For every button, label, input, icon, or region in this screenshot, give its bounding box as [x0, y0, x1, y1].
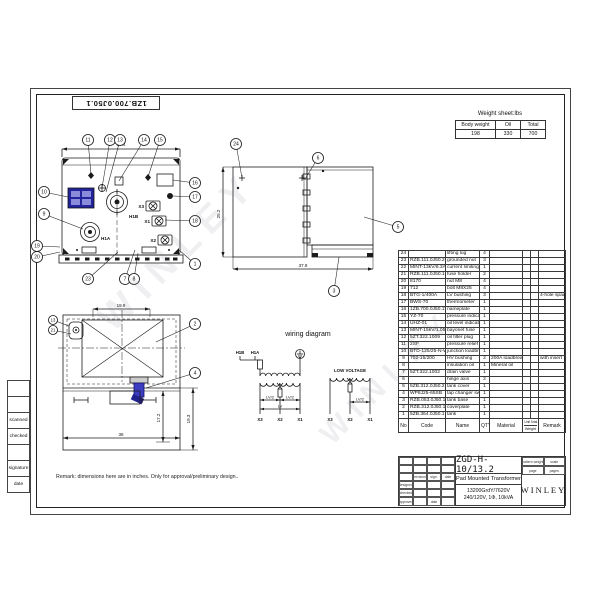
balloon-leader: [156, 324, 195, 342]
parts-header-cell: Material: [490, 419, 523, 433]
wiring-h1b-label: H1B: [236, 350, 245, 355]
parts-row: 55ZB.312.0J50.2tank cover1: [399, 384, 566, 391]
x3-bushing: [146, 201, 160, 211]
parts-row: 15ZB.364.0J50.1tank1: [399, 412, 566, 419]
x1-bushing: [152, 216, 166, 226]
parts-cell: [539, 258, 566, 265]
drawing-number: ZGD-H-10/13.2: [456, 457, 521, 474]
title-block-mini-cell: [441, 481, 455, 489]
parts-cell: nameplate: [446, 307, 480, 314]
wiring-lv-label: LV: [278, 404, 283, 409]
parts-row: 75ZT.322.1002drain valve1: [399, 370, 566, 377]
parts-cell: HV bushing: [446, 356, 480, 363]
nameplate-graphic: [68, 188, 94, 208]
parts-cell: [531, 258, 539, 265]
parts-cell: [490, 300, 523, 307]
parts-cell: [490, 328, 523, 335]
balloon-number: 2: [194, 322, 197, 328]
parts-cell: [523, 384, 531, 391]
parts-cell: YZ-70: [409, 314, 446, 321]
parts-cell: [523, 307, 531, 314]
parts-header-cell: Code: [409, 419, 446, 433]
parts-cell: [539, 377, 566, 384]
parts-cell: 3: [480, 258, 490, 265]
parts-row: 24lifting lug4: [399, 251, 566, 258]
balloon-number: 15: [157, 138, 163, 144]
parts-cell: [539, 405, 566, 412]
parts-row: 17BWS-70thermometer1: [399, 300, 566, 307]
title-block-right-row2: page pages: [522, 466, 565, 475]
title-block-mini-cell: date: [441, 473, 455, 481]
jack-boss-right: [142, 247, 156, 253]
parts-cell: [531, 321, 539, 328]
parts-cell: 9: [399, 356, 409, 363]
parts-cell: [531, 398, 539, 405]
parts-cell: coverplate: [446, 405, 480, 412]
weight-cell: 700: [521, 130, 546, 139]
parts-cell: [490, 398, 523, 405]
parts-cell: [531, 412, 539, 419]
title-block-right: pattern weight scale page pages WINLEY: [522, 457, 565, 505]
parts-cell: UHZ-01: [409, 321, 446, 328]
parts-cell: [539, 286, 566, 293]
wiring-lv-half-label-2: LV/2: [286, 395, 295, 400]
plan-view-drawing: 19.9 36 17.2 19.3 132124: [46, 292, 226, 464]
title-block-mini-cell: [399, 457, 413, 465]
title-block-right-row1: pattern weight scale: [522, 457, 565, 466]
x3-label: X3: [138, 204, 144, 209]
parts-cell: 1: [480, 300, 490, 307]
parts-cell: 1: [480, 391, 490, 398]
weight-cell: 198: [456, 130, 496, 139]
parts-cell: [531, 384, 539, 391]
title-block-mini-cell: sign.: [427, 473, 441, 481]
parts-cell: [531, 300, 539, 307]
parts-cell: [523, 251, 531, 258]
parts-cell: MINT-15kV/1.05A: [409, 328, 446, 335]
parts-cell: Mineral oil: [490, 363, 523, 370]
balloon-number: 17: [192, 195, 198, 201]
parts-row: 23RZB.111.0J50.2grounded nut3: [399, 258, 566, 265]
parts-cell: 4: [399, 391, 409, 398]
parts-cell: current limiting fuse: [446, 265, 480, 272]
parts-cell: 1: [480, 307, 490, 314]
margin-box: [7, 444, 30, 461]
balloon-number: 1: [194, 262, 197, 268]
parts-cell: 13: [399, 328, 409, 335]
parts-cell: 5ZT.322.1002: [409, 370, 446, 377]
spec-voltage-hv: 13200GrdY/7620V: [467, 488, 510, 495]
wiring-lv-half-label-3: LV/2: [356, 397, 365, 402]
title-block-mini-cell: [427, 465, 441, 473]
parts-cell: 1: [480, 363, 490, 370]
parts-cell: 4: [480, 251, 490, 258]
parts-cell: [531, 286, 539, 293]
balloon-number: 12: [107, 138, 113, 144]
parts-cell: 5ZB.364.0J50.1: [409, 412, 446, 419]
product-specs: 13200GrdY/7620V 240/120V, 1Φ, 10kVA: [456, 485, 521, 505]
title-block-mini-cell: [427, 489, 441, 497]
parts-cell: [539, 300, 566, 307]
parts-cell: [539, 314, 566, 321]
title-block: revisionsign.datedesignedcheckedapproved…: [398, 456, 566, 506]
parts-cell: [539, 412, 566, 419]
parts-cell: [523, 377, 531, 384]
balloon-leader: [44, 214, 83, 229]
parts-row: 112SFpressure relief valve1: [399, 342, 566, 349]
parts-cell: [490, 314, 523, 321]
ground-pad-mark: [167, 193, 173, 199]
parts-cell: 4-hole spade: [539, 293, 566, 300]
title-block-mini-cell: approved: [399, 497, 413, 505]
parts-cell: 5ZT.322.1009: [409, 335, 446, 342]
plan-dim-right1: 17.2: [156, 413, 161, 422]
parts-cell: 1: [480, 321, 490, 328]
parts-cell: [523, 265, 531, 272]
parts-cell: BWS-70: [409, 300, 446, 307]
balloon-number: 6: [317, 156, 320, 162]
parts-cell: [539, 384, 566, 391]
parts-cell: BTG-1/400A: [409, 293, 446, 300]
parts-cell: [490, 251, 523, 258]
title-block-mini-cell: [441, 465, 455, 473]
parts-cell: [523, 272, 531, 279]
weight-sheet-title: Weight sheet:lbs: [452, 111, 548, 117]
title-block-mini-cell: [413, 465, 427, 473]
wiring-title: wiring diagram: [284, 331, 331, 338]
spec-voltage-lv: 240/120V, 1Φ, 10kVA: [464, 495, 513, 502]
scale-label: scale: [544, 457, 566, 466]
parts-cell: 1: [480, 314, 490, 321]
margin-box: date: [7, 476, 30, 493]
parts-cell: [539, 391, 566, 398]
parts-cell: [539, 321, 566, 328]
margin-box: [7, 380, 30, 397]
parts-cell: 8: [399, 363, 409, 370]
title-block-mini-cell: [399, 473, 413, 481]
parts-cell: [539, 342, 566, 349]
doc-number-box: 1ZB.700.0J50.1: [72, 96, 160, 110]
left-margin-boxes: scannedcheckedsignaturedate: [7, 381, 30, 493]
parts-cell: [490, 384, 523, 391]
doc-number-text: 1ZB.700.0J50.1: [86, 99, 147, 108]
parts-cell: [539, 335, 566, 342]
wiring-h1a-label: H1A: [251, 350, 260, 355]
parts-cell: 5ZB.312.0J50.2: [409, 384, 446, 391]
title-block-mini-cell: [427, 481, 441, 489]
balloon-leader: [106, 140, 120, 192]
parts-cell: [490, 293, 523, 300]
parts-cell: [539, 265, 566, 272]
parts-cell: 702-15/200: [409, 356, 446, 363]
parts-row: 14UHZ-01oil level indicator1: [399, 321, 566, 328]
parts-cell: pressure indicator: [446, 314, 480, 321]
parts-cell: RZB.111.0J50.2: [409, 258, 446, 265]
title-block-mini-cell: [399, 465, 413, 473]
h1a-label: H1A: [101, 236, 111, 241]
parts-cell: 11: [399, 342, 409, 349]
balloon-number: 19: [34, 244, 40, 250]
parts-cell: pressure relief valve: [446, 342, 480, 349]
parts-cell: nut M8: [446, 279, 480, 286]
parts-cell: [523, 412, 531, 419]
parts-cell: [531, 272, 539, 279]
parts-header-cell: No: [399, 419, 409, 433]
parts-list-table: 24lifting lug423RZB.111.0J50.2grounded n…: [398, 250, 566, 433]
remark-note: Remark: dimensions here are in inches. O…: [56, 474, 239, 480]
title-block-mini-cell: [413, 497, 427, 505]
balloon-number: 4: [194, 371, 197, 377]
parts-cell: tap changer switch: [446, 391, 480, 398]
weight-cell: Body weight: [456, 121, 496, 130]
parts-cell: [531, 356, 539, 363]
parts-cell: RZB.053.0J50.1: [409, 398, 446, 405]
parts-cell: [523, 342, 531, 349]
parts-cell: MINT-13kV/6.3A: [409, 265, 446, 272]
parts-cell: 1: [480, 412, 490, 419]
parts-cell: [490, 258, 523, 265]
parts-cell: 1: [480, 342, 490, 349]
parts-cell: thermometer: [446, 300, 480, 307]
parts-cell: [539, 279, 566, 286]
parts-cell: [490, 412, 523, 419]
margin-box: [7, 396, 30, 413]
weight-cell: 330: [496, 130, 521, 139]
margin-box: scanned: [7, 412, 30, 429]
parts-cell: [523, 258, 531, 265]
parts-cell: [531, 342, 539, 349]
wiring-x2-label-right: X2: [347, 417, 353, 422]
parts-cell: 1: [480, 265, 490, 272]
parts-cell: 2: [480, 377, 490, 384]
side-view-drawing: 25.2 37.9 24653: [216, 138, 406, 303]
balloon-number: 5: [397, 225, 400, 231]
title-block-mini-cell: designed: [399, 481, 413, 489]
title-block-mini-cell: [413, 489, 427, 497]
weight-header-row: Body weightOilTotal: [456, 121, 546, 130]
parts-row: 6hinge axis2: [399, 377, 566, 384]
parts-cell: [531, 328, 539, 335]
parts-cell: [531, 279, 539, 286]
parts-cell: insulation oil: [446, 363, 480, 370]
wiring-x3-label-right: X3: [327, 417, 333, 422]
balloon-leader: [146, 373, 195, 388]
pages-label: pages: [544, 466, 566, 475]
parts-cell: [539, 272, 566, 279]
parts-cell: [409, 377, 446, 384]
parts-cell: 1: [480, 370, 490, 377]
title-block-mini-cell: revision: [413, 473, 427, 481]
wiring-x2-label-left: X2: [277, 417, 283, 422]
wiring-x1-label-right: X1: [367, 417, 373, 422]
base-vent-slots: [65, 258, 178, 261]
parts-row: 4WP8J25-65SBtap changer switch1: [399, 391, 566, 398]
parts-row: 13MINT-15kV/1.05Abayonet fuse1: [399, 328, 566, 335]
wiring-low-voltage-label: LOW VOLTAGE: [334, 368, 366, 373]
title-block-mini-cell: [441, 489, 455, 497]
parts-cell: [523, 356, 531, 363]
wiring-x3-label-left: X3: [257, 417, 263, 422]
front-view-drawing: 37.4 H1B H1A X3 X1 X2 111213141516171810…: [32, 128, 212, 290]
balloon-number: 24: [233, 142, 239, 148]
parts-cell: 14: [399, 321, 409, 328]
parts-cell: [539, 251, 566, 258]
margin-box: checked: [7, 428, 30, 445]
parts-cell: [490, 286, 523, 293]
plan-dim-right2: 19.3: [186, 414, 191, 423]
title-block-mini-cell: [441, 457, 455, 465]
product-name: Pad Mounted Transformer: [456, 474, 521, 485]
jack-boss-left: [82, 247, 96, 253]
side-dim-height: 25.2: [216, 209, 221, 218]
wiring-diagram: wiring diagram: [230, 326, 390, 440]
parts-cell: junction loadbreak: [446, 349, 480, 356]
parts-cell: [490, 391, 523, 398]
parts-cell: tank cover: [446, 384, 480, 391]
balloon-number: 9: [43, 212, 46, 218]
weight-cell: Oil: [496, 121, 521, 130]
h1b-label: H1B: [129, 214, 139, 219]
title-block-mini-cell: [441, 497, 455, 505]
parts-cell: 1: [399, 412, 409, 419]
parts-cell: 15: [399, 314, 409, 321]
balloon-number: 13: [117, 138, 123, 144]
parts-cell: drain valve: [446, 370, 480, 377]
parts-cell: 712: [409, 286, 446, 293]
balloon-number: 10: [41, 190, 47, 196]
parts-cell: 4: [480, 279, 490, 286]
title-block-mini-cell: checked: [399, 489, 413, 497]
parts-cell: [490, 377, 523, 384]
balloon-number: 16: [192, 181, 198, 187]
parts-cell: 2: [480, 356, 490, 363]
parts-cell: [523, 286, 531, 293]
parts-cell: [531, 314, 539, 321]
title-block-mini-cell: [427, 457, 441, 465]
parts-cell: 8170: [409, 279, 446, 286]
parts-cell: [409, 251, 446, 258]
parts-cell: oil filter plug: [446, 335, 480, 342]
parts-cell: 1: [480, 398, 490, 405]
parts-row: 3RZB.053.0J50.1tank base1: [399, 398, 566, 405]
side-dim-width: 37.9: [299, 263, 308, 268]
parts-cell: 2: [480, 272, 490, 279]
parts-cell: [523, 314, 531, 321]
parts-cell: tank base: [446, 398, 480, 405]
title-block-center: ZGD-H-10/13.2 Pad Mounted Transformer 13…: [455, 457, 522, 505]
parts-cell: [531, 370, 539, 377]
parts-cell: 1: [480, 335, 490, 342]
parts-cell: [539, 370, 566, 377]
parts-cell: 3: [480, 293, 490, 300]
wiring-lv-half-label-1: LV/2: [266, 395, 275, 400]
parts-cell: [531, 307, 539, 314]
page-label: page: [522, 466, 544, 475]
parts-cell: [539, 398, 566, 405]
parts-cell: 12: [399, 335, 409, 342]
bracket-mark: [157, 174, 173, 186]
parts-cell: 5: [399, 384, 409, 391]
oil-level-mark: [145, 174, 151, 181]
parts-cell: [531, 377, 539, 384]
parts-cell: [523, 363, 531, 370]
bayonet-fuse-corner: [69, 322, 83, 339]
parts-cell: 3: [399, 398, 409, 405]
title-block-approval-grid: revisionsign.datedesignedcheckedapproved…: [399, 457, 455, 505]
parts-cell: [531, 251, 539, 258]
parts-cell: bolt M8X25: [446, 286, 480, 293]
parts-cell: 1ZB.700.0J50.1WP: [409, 307, 446, 314]
parts-cell: [531, 391, 539, 398]
parts-cell: [523, 300, 531, 307]
parts-cell: [490, 321, 523, 328]
wiring-x1-label-left: X1: [297, 417, 303, 422]
balloon-number: 14: [141, 138, 147, 144]
parts-cell: 4: [480, 286, 490, 293]
parts-cell: [531, 293, 539, 300]
parts-cell: [531, 405, 539, 412]
plan-dim-bottom: 36: [118, 432, 124, 437]
parts-cell: 10: [399, 349, 409, 356]
balloon-number: 7: [124, 277, 127, 283]
pattern-weight-label: pattern weight: [522, 457, 544, 466]
parts-cell: hinge axis: [446, 377, 480, 384]
h1a-bushing: [81, 223, 100, 242]
balloon-number: 11: [85, 138, 90, 144]
drawing-sheet: 1ZB.700.0J50.1 scannedcheckedsignatureda…: [0, 0, 600, 600]
parts-cell: lifting lug: [446, 251, 480, 258]
parts-cell: 6: [399, 377, 409, 384]
parts-cell: 1: [480, 349, 490, 356]
parts-cell: 7: [399, 370, 409, 377]
parts-cell: RZB.111.0J50.1: [409, 272, 446, 279]
parts-cell: [523, 405, 531, 412]
parts-cell: [523, 335, 531, 342]
parts-row: 21RZB.111.0J50.1fuse holder2: [399, 272, 566, 279]
parts-cell: [523, 349, 531, 356]
parts-cell: [490, 342, 523, 349]
parts-row: 208170nut M84: [399, 279, 566, 286]
company-name: WINLEY: [522, 475, 565, 505]
parts-header-cell: Name: [446, 419, 480, 433]
parts-cell: fuse holder: [446, 272, 480, 279]
parts-cell: [490, 370, 523, 377]
parts-row: 22MINT-13kV/6.3Acurrent limiting fuse1: [399, 265, 566, 272]
parts-cell: grounded nut: [446, 258, 480, 265]
parts-cell: [523, 370, 531, 377]
parts-row: 19712bolt M8X254: [399, 286, 566, 293]
parts-cell: [539, 363, 566, 370]
parts-cell: [523, 391, 531, 398]
parts-cell: bayonet fuse: [446, 328, 480, 335]
x2-bushing: [158, 235, 172, 245]
parts-header-cell: QTY: [480, 419, 490, 433]
parts-header-weight: UnitTotalWeight: [523, 419, 539, 433]
parts-cell: [523, 279, 531, 286]
parts-cell: [490, 405, 523, 412]
x2-label: X2: [150, 238, 156, 243]
parts-cell: LV bushing: [446, 293, 480, 300]
parts-cell: RZB.312.0J50.1: [409, 405, 446, 412]
parts-cell: [531, 349, 539, 356]
parts-row: 9702-15/200HV bushing2200A loadbreakwith…: [399, 356, 566, 363]
parts-cell: [523, 398, 531, 405]
balloon-leader: [88, 252, 118, 279]
margin-box: signature: [7, 460, 30, 477]
parts-cell: WP8J25-65SB: [409, 391, 446, 398]
parts-cell: [539, 328, 566, 335]
parts-cell: 16: [399, 307, 409, 314]
